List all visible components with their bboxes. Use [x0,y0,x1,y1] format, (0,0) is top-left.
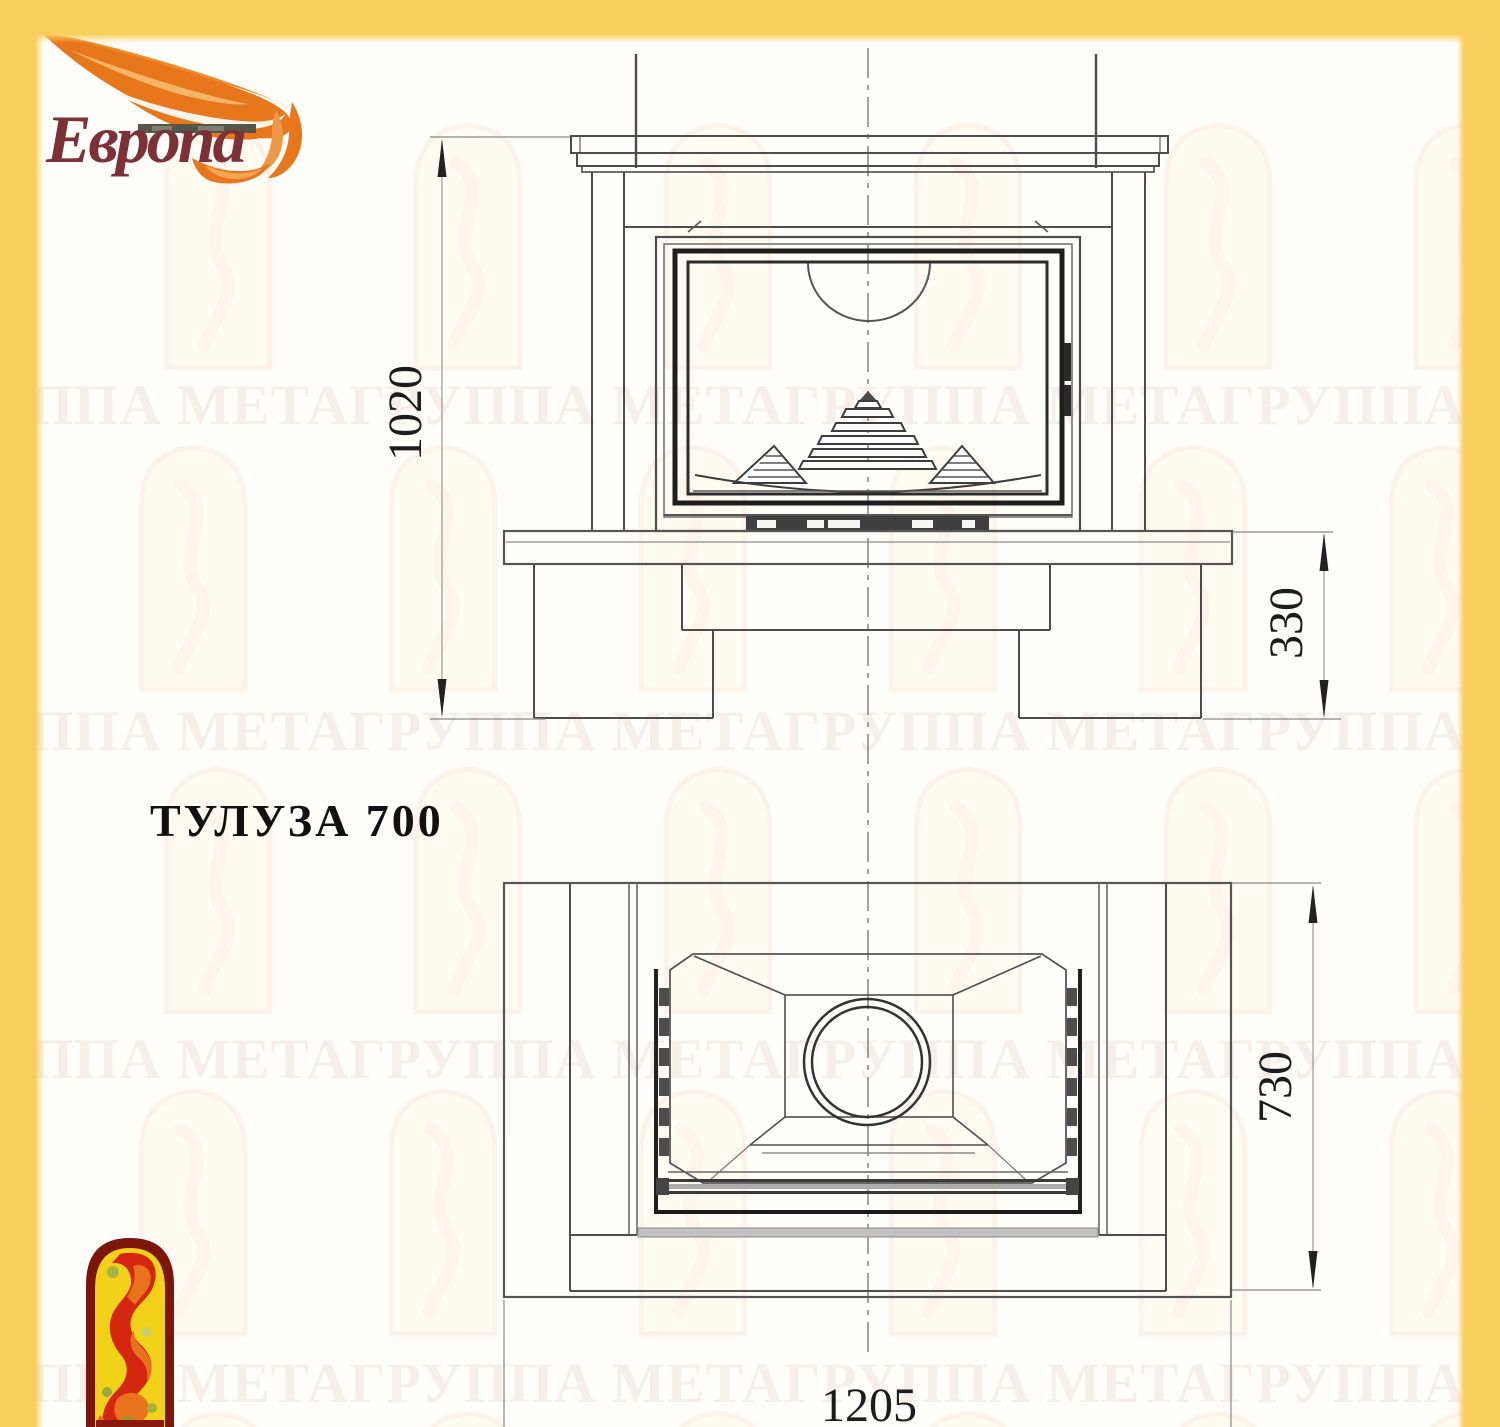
svg-text:ТУЛУЗА 700: ТУЛУЗА 700 [150,795,444,846]
svg-text:1020: 1020 [379,365,432,461]
svg-text:730: 730 [1249,1051,1302,1123]
svg-text:330: 330 [1260,587,1313,659]
svg-text:УППА МЕТАГРУППА МЕТАГРУППА МЕТ: УППА МЕТАГРУППА МЕТАГРУППА МЕТАГРУППА [0,1028,1466,1091]
svg-text:УППА МЕТАГРУППА МЕТАГРУППА МЕТ: УППА МЕТАГРУППА МЕТАГРУППА МЕТАГРУППА [0,700,1466,763]
svg-text:УППА МЕТАГРУППА МЕТАГРУППА МЕТ: УППА МЕТАГРУППА МЕТАГРУППА МЕТАГРУППА [0,374,1466,437]
svg-text:Европа: Европа [45,101,246,177]
svg-text:УППА МЕТАГРУППА МЕТАГРУППА МЕТ: УППА МЕТАГРУППА МЕТАГРУППА МЕТАГРУППА [0,1352,1466,1415]
svg-text:1205: 1205 [821,1379,917,1427]
